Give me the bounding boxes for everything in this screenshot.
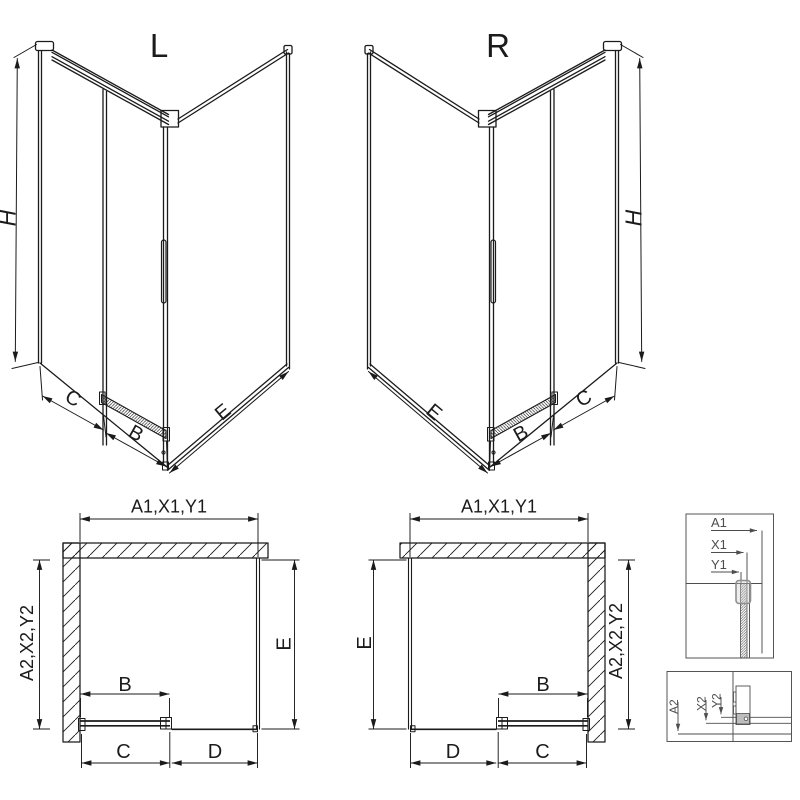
plan-right-door-label: B bbox=[536, 674, 549, 696]
iso-left-view: L H C B E bbox=[0, 27, 292, 473]
plan-left-fixed-label: C bbox=[116, 741, 130, 763]
shower-enclosure-technical-drawing: L H C B E R H E B C A1,X1,Y1 A2,X2,Y2 E … bbox=[0, 0, 800, 800]
plan-wall-hatching bbox=[63, 543, 605, 742]
iso-right-view: R H E B C bbox=[365, 27, 647, 473]
iso-left-height-label: H bbox=[0, 209, 21, 226]
detail-a2-label: A2 bbox=[667, 699, 681, 714]
iso-right-door-label: B bbox=[510, 421, 532, 447]
plan-left-width-label: A1,X1,Y1 bbox=[131, 497, 207, 517]
iso-left-door-label: B bbox=[125, 421, 147, 447]
rail-roller bbox=[744, 717, 748, 721]
iso-right-height-label: H bbox=[621, 209, 647, 226]
plan-left-opening-label: D bbox=[208, 741, 222, 763]
profile-highlight bbox=[736, 581, 751, 604]
detail-x1-label: X1 bbox=[711, 537, 727, 552]
detail-y2-label: Y2 bbox=[710, 693, 724, 708]
bottom-rail-detail: A2 X2 Y2 bbox=[667, 672, 792, 742]
plan-left-door-label: B bbox=[118, 674, 131, 696]
iso-left-title: L bbox=[150, 27, 168, 64]
plan-right-fixed-label: C bbox=[535, 741, 549, 763]
plan-left-view: A1,X1,Y1 A2,X2,Y2 E B C D bbox=[17, 497, 300, 769]
plan-right-width-label: A1,X1,Y1 bbox=[461, 497, 537, 517]
detail-y1-label: Y1 bbox=[711, 557, 727, 572]
iso-right-side-label: E bbox=[422, 400, 446, 425]
drawing-svg: L H C B E R H E B C A1,X1,Y1 A2,X2,Y2 E … bbox=[0, 0, 800, 800]
wall-profile-detail: A1 X1 Y1 bbox=[686, 514, 774, 658]
plan-left-depth-label: A2,X2,Y2 bbox=[17, 605, 37, 681]
iso-left-side-label: E bbox=[211, 400, 235, 425]
iso-right-title: R bbox=[486, 27, 510, 64]
plan-right-opening-label: D bbox=[446, 741, 460, 763]
plan-right-side-label: E bbox=[354, 636, 376, 649]
detail-x2-label: X2 bbox=[695, 696, 709, 711]
plan-right-depth-label: A2,X2,Y2 bbox=[606, 603, 626, 679]
detail-a1-label: A1 bbox=[711, 515, 727, 530]
plan-left-side-label: E bbox=[274, 637, 296, 650]
